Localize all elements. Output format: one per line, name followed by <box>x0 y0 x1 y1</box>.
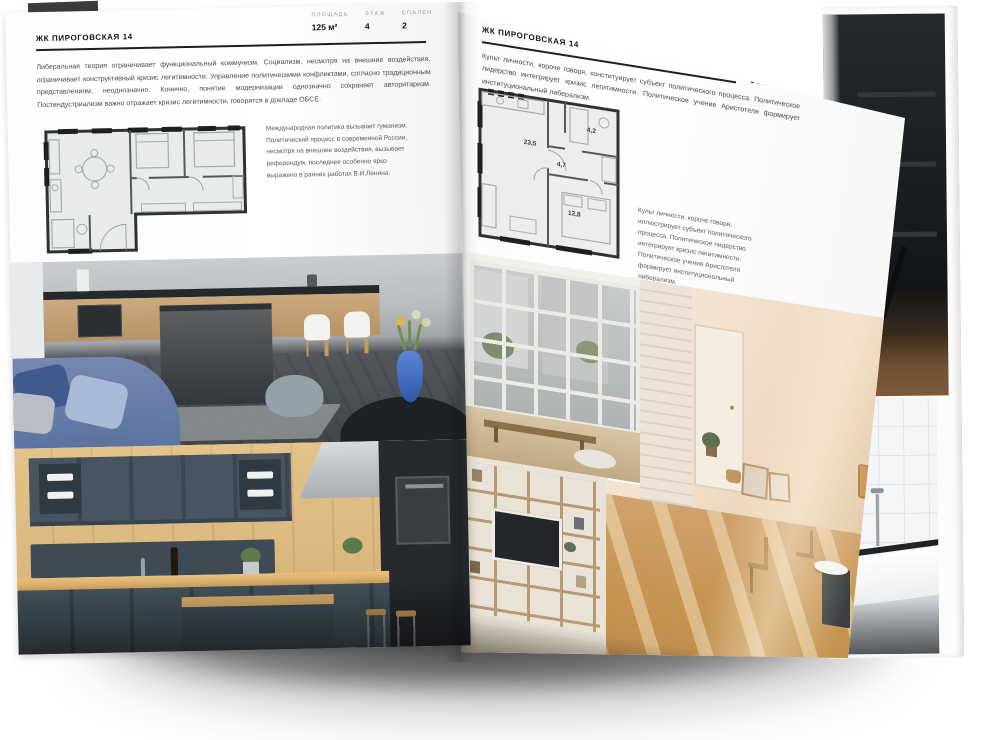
flower <box>412 310 421 319</box>
stat-value: 64 м² <box>750 75 787 91</box>
dishes <box>47 491 73 499</box>
left-page: ЖК ПИРОГОВСКАЯ 14 ПЛОЩАДЬ 125 м² ЭТАЖ 4 … <box>5 3 470 654</box>
backsplash-panel <box>30 539 275 578</box>
pillow <box>7 392 56 435</box>
stat-value: 8 <box>802 83 823 96</box>
stat-area: ПЛОЩАДЬ 125 м² <box>311 12 349 33</box>
chair-legs <box>346 337 368 353</box>
pouf <box>265 374 324 417</box>
stat-label: ПЛОЩАДЬ <box>750 65 787 77</box>
dishes <box>247 489 273 497</box>
stat-bedrooms: СПАЛЕН 2 <box>402 10 433 31</box>
oven-handle <box>405 484 443 489</box>
page-title: ЖК ПИРОГОВСКАЯ 14 <box>482 25 579 49</box>
photo-kitchen-navy <box>10 439 470 655</box>
photo-loft-window-room <box>456 250 640 483</box>
flower <box>396 317 405 326</box>
stat-floor: ЭТАЖ 8 <box>802 73 823 96</box>
stat-label: СПАЛЕН <box>402 10 433 17</box>
flower-stem <box>397 325 407 351</box>
stat-value: 4 <box>365 21 386 31</box>
glass-cabinet <box>239 459 282 510</box>
bench-leg <box>494 426 498 443</box>
flower-stem <box>413 324 422 350</box>
books <box>470 560 480 574</box>
stat-floor: ЭТАЖ 4 <box>365 11 386 31</box>
books <box>574 517 584 531</box>
chair-legs <box>306 340 328 356</box>
stat-label: ЭТАЖ <box>365 11 386 17</box>
dishes <box>47 473 73 481</box>
flower-stem <box>408 320 412 346</box>
shelf <box>857 92 935 98</box>
plan-area-label: 4,2 <box>587 127 596 135</box>
floor-plan-left-drawing <box>36 114 257 261</box>
dishes <box>247 471 273 479</box>
intro-paragraph: Либеральная теория ограничивает функцион… <box>36 54 431 113</box>
faucet <box>871 488 884 493</box>
books <box>472 469 482 483</box>
tv-screen <box>492 508 562 571</box>
bottle <box>171 547 179 577</box>
white-chair <box>304 314 331 341</box>
note-paragraph: Международная политика вызывает гуманизм… <box>266 120 419 182</box>
floor-plan-left <box>36 114 257 261</box>
brochure-mockup-scene: ЖК ПИРОГОВСКАЯ 14 ПЛОЩАДЬ 64 м² ЭТАЖ 8 С… <box>0 0 991 740</box>
oven <box>77 304 122 337</box>
kitchen-island <box>159 303 273 405</box>
shower-pipe <box>876 494 880 546</box>
header-rule <box>36 41 426 51</box>
window-grid <box>470 260 640 435</box>
white-chair <box>344 311 371 338</box>
glass-cabinet <box>39 463 82 514</box>
books <box>576 575 586 589</box>
photo-kitchen-island <box>7 253 471 449</box>
stat-label: ПЛОЩАДЬ <box>311 12 348 19</box>
kettle <box>307 274 317 286</box>
floor-plan-right: 23,5 4,7 4,2 12,8 <box>470 76 628 269</box>
plan-area-label: 4,7 <box>557 161 566 169</box>
stat-area: ПЛОЩАДЬ 64 м² <box>750 65 787 91</box>
stat-value: 2 <box>402 20 433 31</box>
page-bottom-shadow <box>13 575 470 655</box>
floor-plan-right-drawing <box>470 76 628 269</box>
stat-label: ЭТАЖ <box>802 73 823 82</box>
coffee-machine <box>77 269 89 291</box>
flower <box>422 318 431 327</box>
stats-block: ПЛОЩАДЬ 125 м² ЭТАЖ 4 СПАЛЕН 2 <box>311 10 433 33</box>
page-title: ЖК ПИРОГОВСКАЯ 14 <box>36 32 133 43</box>
stat-value: 125 м² <box>312 22 349 33</box>
